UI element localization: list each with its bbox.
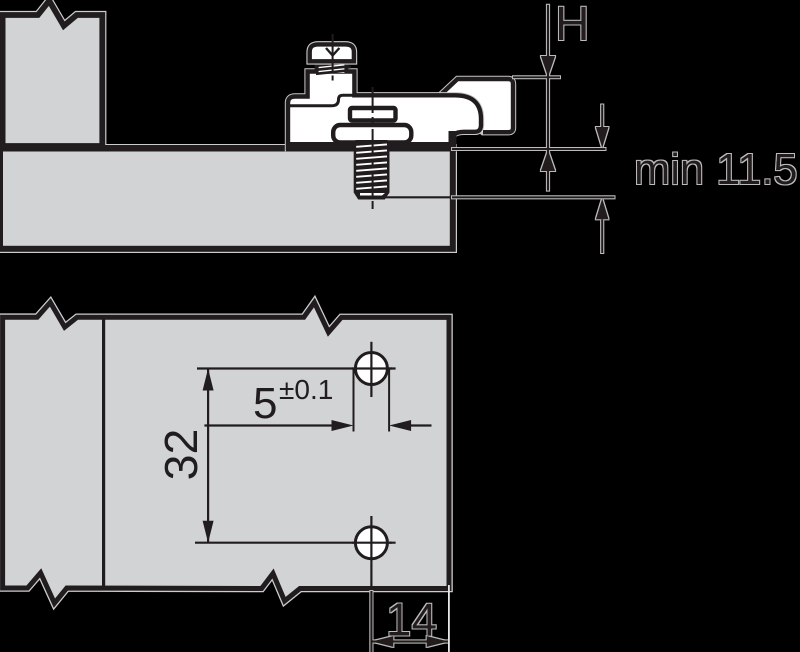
svg-text:±0.1: ±0.1 <box>279 374 333 405</box>
svg-text:min 11.5: min 11.5 <box>634 146 798 194</box>
svg-text:H: H <box>555 0 590 51</box>
svg-text:32: 32 <box>155 429 207 481</box>
svg-text:5: 5 <box>253 379 277 428</box>
svg-text:14: 14 <box>386 594 437 646</box>
